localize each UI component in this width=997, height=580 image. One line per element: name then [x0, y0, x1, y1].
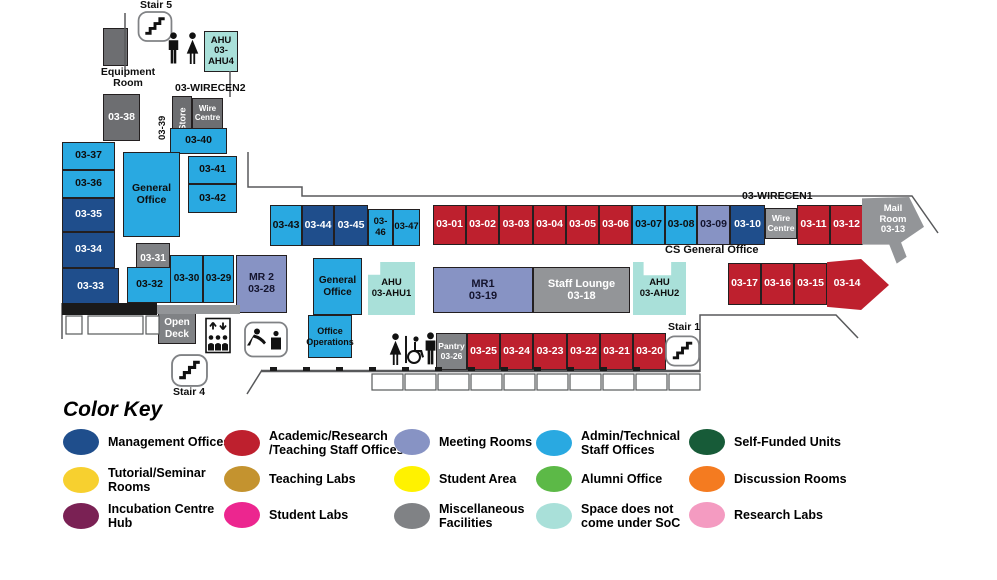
elevator-icon	[205, 317, 231, 354]
room-staff-lounge: Staff Lounge 03-18	[533, 267, 630, 313]
legend-management-offices-swatch	[63, 429, 99, 455]
room-ahu1: AHU 03-AHU1	[368, 262, 415, 315]
stair5-label: Stair 5	[136, 0, 176, 11]
room-03-23: 03-23	[533, 333, 567, 370]
legend-academic-offices-swatch	[224, 430, 260, 456]
legend-management-offices-label: Management Offices	[108, 435, 230, 449]
room-03-07: 03-07	[632, 205, 665, 245]
room-equipment-box	[103, 28, 128, 66]
floor-plan: AHU 03-AHU403-38StoreWire Centre03-4003-…	[0, 0, 997, 580]
room-03-09: 03-09	[697, 205, 730, 245]
legend-teaching-labs-swatch	[224, 466, 260, 492]
legend-academic-offices-label: Academic/Research /Teaching Staff Office…	[269, 429, 404, 458]
legend-student-area-label: Student Area	[439, 472, 516, 486]
room-general-office-mid: General Office	[313, 258, 362, 315]
room-03-16: 03-16	[761, 263, 794, 305]
room-general-office-west: General Office	[123, 152, 180, 237]
room-03-14: 03-14	[827, 258, 889, 310]
legend-not-soc: Space does not come under SoC	[536, 502, 680, 531]
legend-tutorial-rooms-swatch	[63, 467, 99, 493]
room-03-03: 03-03	[499, 205, 533, 245]
legend-misc-facilities-label: Miscellaneous Facilities	[439, 502, 524, 531]
wheelchair-icon	[406, 336, 424, 364]
room-03-41: 03-41	[188, 156, 237, 184]
room-03-12: 03-12	[830, 205, 863, 245]
legend-academic-offices: Academic/Research /Teaching Staff Office…	[224, 429, 404, 458]
stair4-icon	[171, 354, 208, 387]
female-restroom-icon-bottom	[387, 333, 404, 366]
legend-self-funded-units-label: Self-Funded Units	[734, 435, 841, 449]
room-03-17: 03-17	[728, 263, 761, 305]
legend-self-funded-units-swatch	[689, 429, 725, 455]
female-restroom-icon-top	[184, 32, 201, 65]
room-03-22: 03-22	[567, 333, 600, 370]
room-ahu2: AHU 03-AHU2	[633, 262, 686, 315]
room-mr1: MR1 03-19	[433, 267, 533, 313]
stair1-icon	[665, 335, 700, 367]
room-ahu4: AHU 03-AHU4	[204, 31, 238, 72]
legend-incubation-hub-label: Incubation Centre Hub	[108, 502, 214, 531]
room-03-32: 03-32	[127, 267, 172, 303]
room-03-40: 03-40	[170, 128, 227, 154]
room-03-37: 03-37	[62, 142, 115, 170]
legend-research-labs: Research Labs	[689, 502, 823, 528]
wirecen1-label: 03-WIRECEN1	[742, 191, 813, 202]
room-03-43: 03-43	[270, 205, 302, 246]
legend-alumni-office-swatch	[536, 466, 572, 492]
legend-incubation-hub: Incubation Centre Hub	[63, 502, 214, 531]
male-restroom-icon-bottom	[423, 332, 438, 366]
room-03-01: 03-01	[433, 205, 466, 245]
room-03-47: 03-47	[393, 209, 420, 246]
legend-admin-offices-label: Admin/Technical Staff Offices	[581, 429, 680, 458]
stair4-label: Stair 4	[169, 387, 209, 398]
room-03-06: 03-06	[599, 205, 632, 245]
room-office-operations: Office Operations	[308, 315, 352, 358]
legend-admin-offices: Admin/Technical Staff Offices	[536, 429, 680, 458]
legend-incubation-hub-swatch	[63, 503, 99, 529]
room-03-24: 03-24	[500, 333, 533, 370]
legend-teaching-labs: Teaching Labs	[224, 466, 356, 492]
room-03-36: 03-36	[62, 170, 115, 198]
room-03-44: 03-44	[302, 205, 334, 246]
room-03-34: 03-34	[62, 232, 115, 268]
room-03-08: 03-08	[665, 205, 697, 245]
room-open-deck: Open Deck	[158, 313, 196, 344]
legend-alumni-office-label: Alumni Office	[581, 472, 662, 486]
room-03-38: 03-38	[103, 94, 140, 141]
room-03-20: 03-20	[633, 333, 666, 370]
room-mr2: MR 2 03-28	[236, 255, 287, 313]
legend-meeting-rooms-swatch	[394, 429, 430, 455]
legend-teaching-labs-label: Teaching Labs	[269, 472, 356, 486]
room-03-45: 03-45	[334, 205, 368, 246]
legend-management-offices: Management Offices	[63, 429, 230, 455]
room-mail-room: Mail Room 03-13	[862, 197, 924, 265]
legend-discussion-rooms-label: Discussion Rooms	[734, 472, 847, 486]
legend-misc-facilities-swatch	[394, 503, 430, 529]
room-03-33: 03-33	[62, 268, 119, 305]
room-03-02: 03-02	[466, 205, 499, 245]
room-03-35: 03-35	[62, 198, 115, 232]
room-03-30: 03-30	[170, 255, 203, 303]
room-03-42: 03-42	[188, 184, 237, 213]
legend-alumni-office: Alumni Office	[536, 466, 662, 492]
room-03-10: 03-10	[730, 205, 765, 245]
equipment-room-label: Equipment Room	[96, 67, 160, 90]
room-03-39-label: 03-39	[158, 116, 168, 140]
legend-misc-facilities: Miscellaneous Facilities	[394, 502, 524, 531]
legend-meeting-rooms-label: Meeting Rooms	[439, 435, 532, 449]
room-wire-centre-2: Wire Centre	[192, 98, 223, 129]
room-03-29: 03-29	[203, 255, 234, 303]
legend-research-labs-swatch	[689, 502, 725, 528]
legend-tutorial-rooms-label: Tutorial/Seminar Rooms	[108, 466, 206, 495]
male-restroom-icon-top	[166, 32, 181, 65]
room-03-05: 03-05	[566, 205, 599, 245]
legend-student-area: Student Area	[394, 466, 516, 492]
room-03-04: 03-04	[533, 205, 566, 245]
legend-student-area-swatch	[394, 466, 430, 492]
water-cooler-icon	[244, 321, 288, 358]
room-03-15: 03-15	[794, 263, 827, 305]
legend-meeting-rooms: Meeting Rooms	[394, 429, 532, 455]
legend-admin-offices-swatch	[536, 430, 572, 456]
legend-not-soc-swatch	[536, 503, 572, 529]
room-pantry: Pantry 03-26	[436, 333, 467, 370]
legend-self-funded-units: Self-Funded Units	[689, 429, 841, 455]
legend-student-labs: Student Labs	[224, 502, 348, 528]
room-03-46: 03-46	[368, 209, 393, 246]
legend-discussion-rooms: Discussion Rooms	[689, 466, 847, 492]
legend-not-soc-label: Space does not come under SoC	[581, 502, 680, 531]
cs-general-office-label: CS General Office	[665, 245, 759, 257]
color-key-title: Color Key	[63, 398, 162, 422]
legend-research-labs-label: Research Labs	[734, 508, 823, 522]
wirecen2-label: 03-WIRECEN2	[175, 83, 246, 94]
legend-discussion-rooms-swatch	[689, 466, 725, 492]
room-03-21: 03-21	[600, 333, 633, 370]
legend-student-labs-label: Student Labs	[269, 508, 348, 522]
room-03-11: 03-11	[797, 205, 830, 245]
room-wire-centre-1: Wire Centre	[765, 208, 797, 239]
legend-student-labs-swatch	[224, 502, 260, 528]
room-03-25: 03-25	[467, 333, 500, 370]
legend-tutorial-rooms: Tutorial/Seminar Rooms	[63, 466, 206, 495]
stair1-label: Stair 1	[663, 322, 705, 333]
